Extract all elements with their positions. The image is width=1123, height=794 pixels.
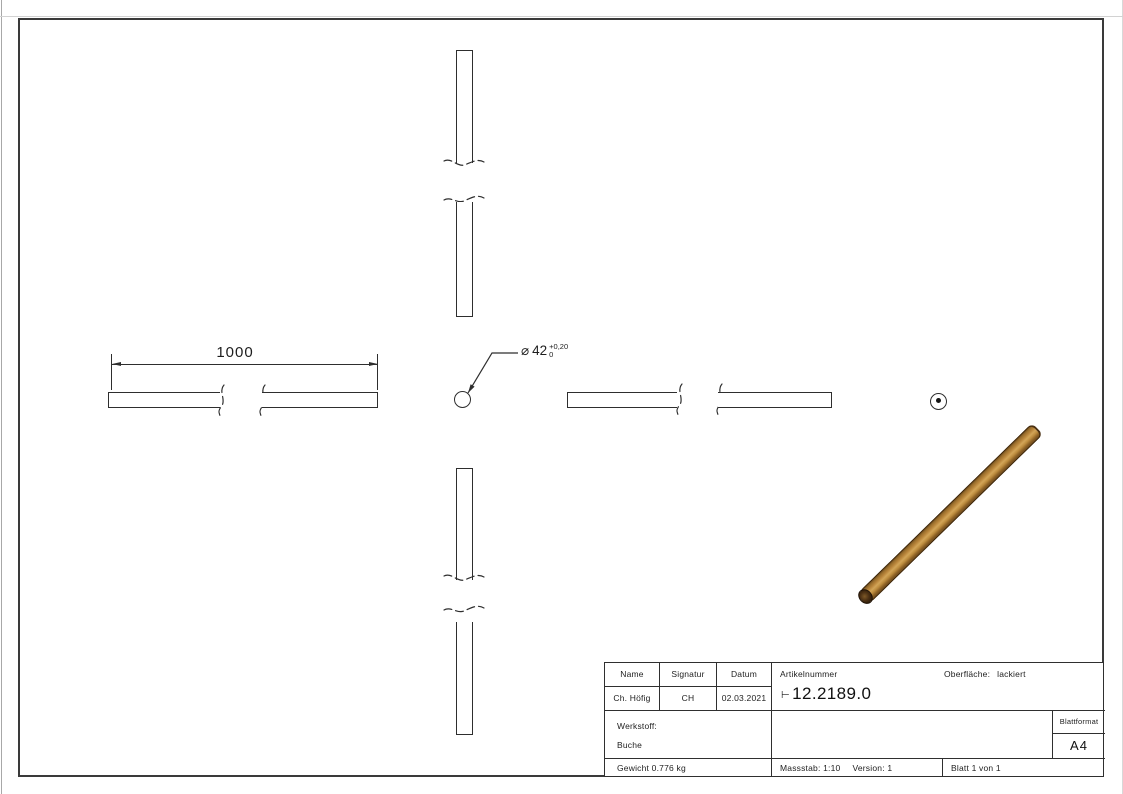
artikelnummer-cell: Artikelnummer Oberfläche: lackiert ⊢ 12.… [772,663,1105,711]
version-value: Version: 1 [852,763,892,773]
tolerance-lower: 0 [549,351,568,358]
extension-line [377,354,378,390]
diameter-value: 42 [532,343,547,358]
werkstoff-label: Werkstoff: [617,721,771,731]
tolerance-upper: +0,20 [549,343,568,350]
page-top-shadow [0,16,1123,17]
break-line [443,570,485,586]
value-datum: 02.03.2021 [717,687,772,711]
break-line [443,155,485,171]
dimension-arrow-left [112,362,121,366]
title-block: Name Signatur Datum Artikelnummer Oberfl… [604,662,1104,777]
diameter-symbol: ⌀ [521,343,529,359]
header-datum: Datum [717,663,772,687]
header-name: Name [605,663,660,687]
massstab-cell: Massstab: 1:10Version: 1 [772,759,943,777]
rod-segment [456,50,473,163]
diameter-tolerance: +0,20 0 [549,343,568,358]
rod-segment [108,392,220,408]
gewicht-cell: Gewicht 0.776 kg [605,759,772,777]
artikelnummer-value: ⊢ 12.2189.0 [781,684,871,704]
rod-segment [456,468,473,580]
rod-segment [456,202,473,317]
break-line [671,383,687,417]
leader-line [456,346,526,402]
blatt-cell: Blatt 1 von 1 [943,759,1105,777]
diameter-text: ⌀ 42 +0,20 0 [521,343,568,359]
center-dot [936,398,941,403]
werkstoff-value: Buche [617,740,771,750]
werkstoff-cell: Werkstoff: Buche [605,711,772,759]
rod-segment [718,392,832,408]
empty-cell [772,711,1053,759]
page-edge-left [1,0,2,794]
value-name: Ch. Höfig [605,687,660,711]
oberflaeche-label: Oberfläche: [944,669,990,679]
dimension-line [112,364,378,365]
value-signatur: CH [660,687,717,711]
break-line [213,384,229,418]
paper-sheet: 1000 ⌀ 42 +0,20 0 [0,0,1123,794]
rod-segment [262,392,378,408]
break-line [443,602,485,618]
oberflaeche-field: Oberfläche: lackiert [944,669,1026,679]
rod-segment [456,622,473,735]
dimension-arrow-right [369,362,378,366]
blattformat-label: Blattformat [1053,711,1105,734]
extension-line [111,354,112,390]
rod-segment [567,392,677,408]
oberflaeche-value: lackiert [997,669,1026,679]
header-artikelnummer: Artikelnummer [780,669,837,679]
massstab-value: Massstab: 1:10 [780,763,840,773]
drawing-sheet: { "views": { "length_dimension": "1000",… [0,0,1123,794]
artikelnummer-prefix: ⊢ [781,690,790,701]
header-signatur: Signatur [660,663,717,687]
artikelnummer-number: 12.2189.0 [792,684,871,704]
blattformat-value: A4 [1053,734,1105,759]
length-dimension-label: 1000 [202,344,268,361]
